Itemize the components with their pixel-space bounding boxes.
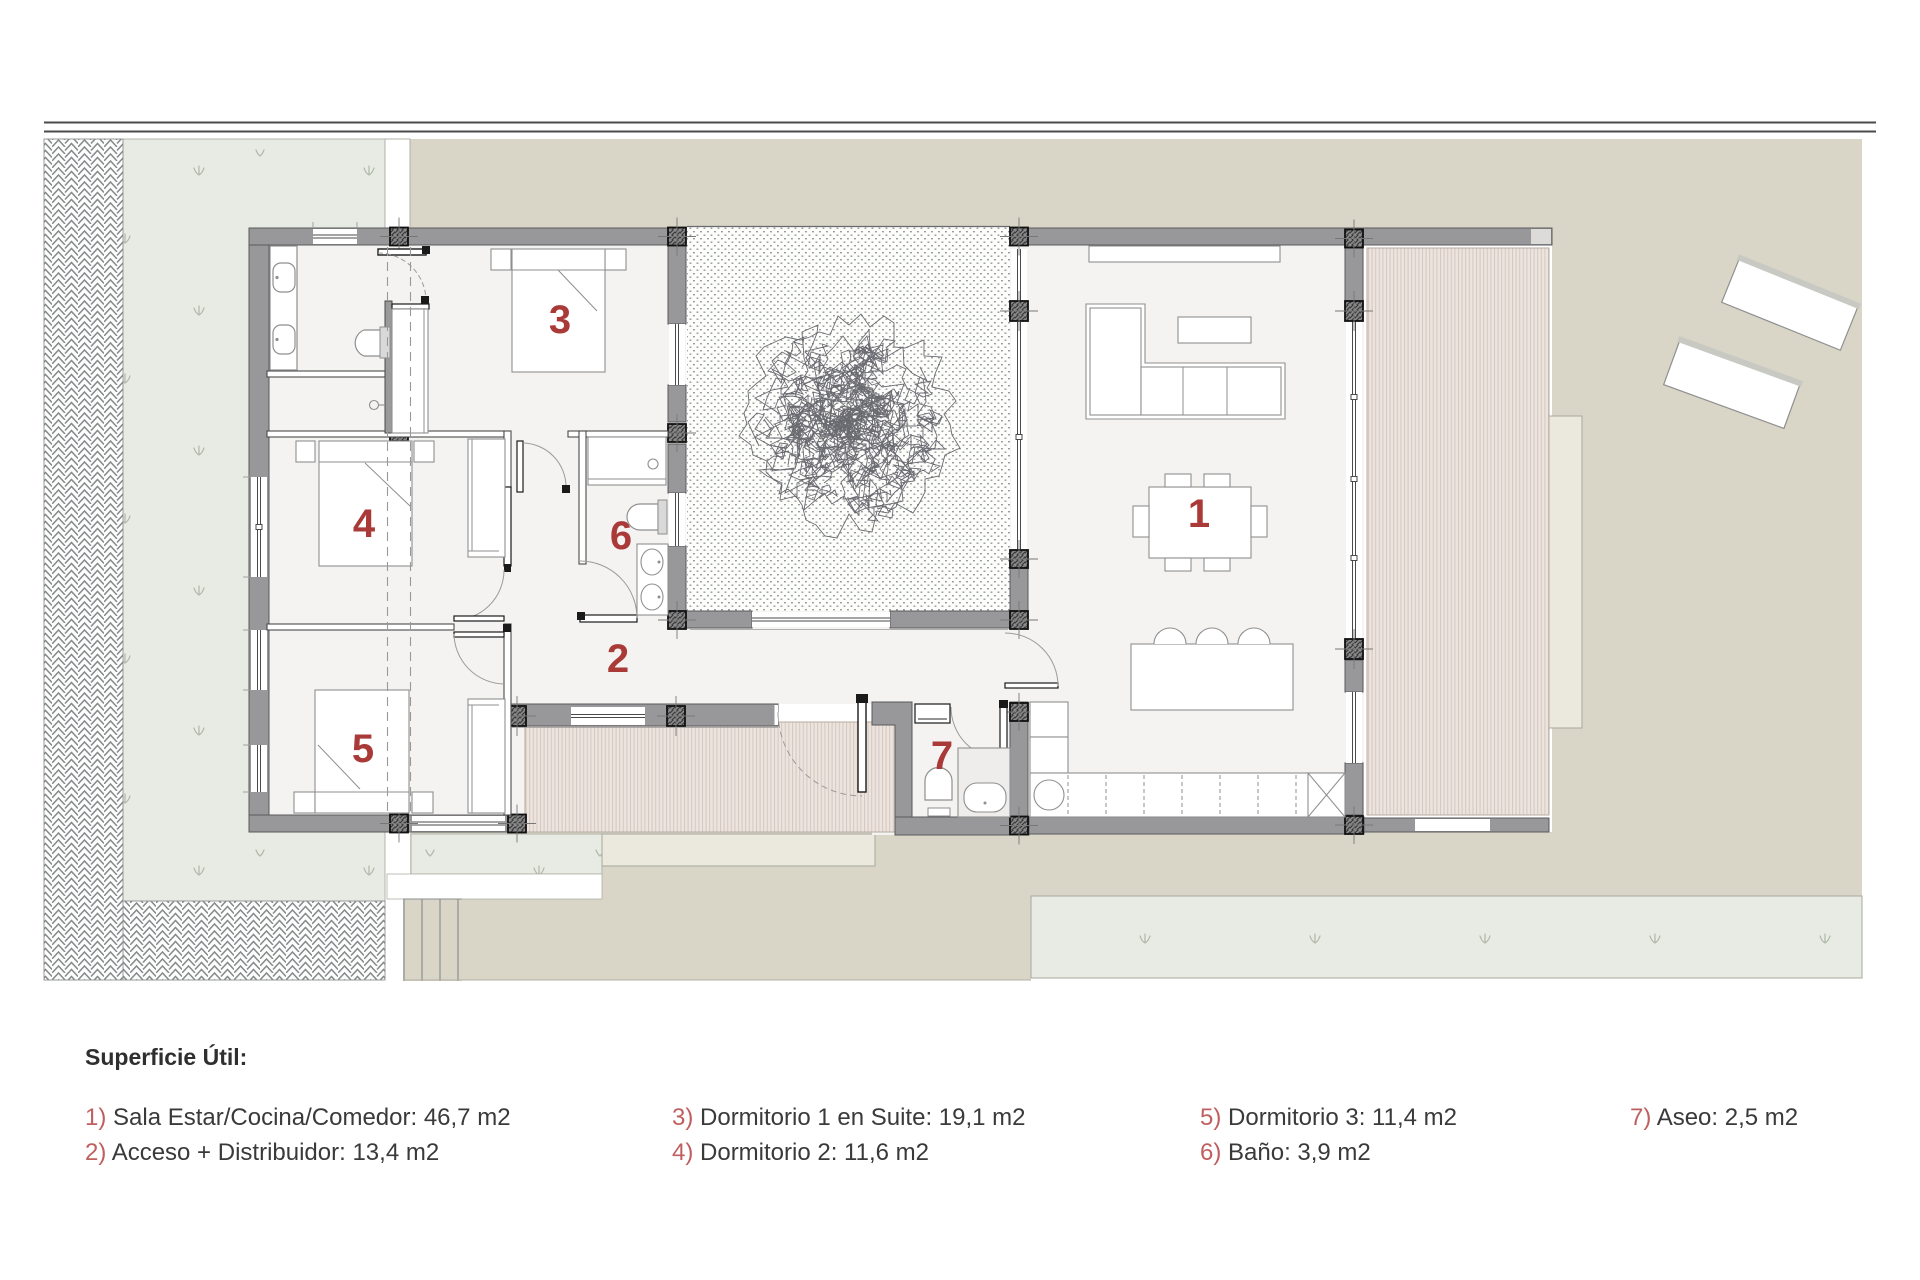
svg-text:1: 1 — [1188, 492, 1210, 536]
svg-text:6: 6 — [610, 514, 632, 558]
svg-text:5) Dormitorio 3: 11,4 m2: 5) Dormitorio 3: 11,4 m2 — [1200, 1104, 1457, 1131]
svg-text:1) Sala Estar/Cocina/Comedor:: 1) Sala Estar/Cocina/Comedor: 46,7 m2 — [85, 1104, 511, 1131]
svg-text:7) Aseo: 2,5 m2: 7) Aseo: 2,5 m2 — [1630, 1104, 1798, 1131]
svg-text:2) Acceso + Distribuidor: 13,4: 2) Acceso + Distribuidor: 13,4 m2 — [85, 1139, 439, 1166]
svg-text:4: 4 — [353, 502, 376, 546]
svg-text:3) Dormitorio 1 en Suite: 19,1: 3) Dormitorio 1 en Suite: 19,1 m2 — [672, 1104, 1026, 1131]
svg-text:2: 2 — [607, 637, 629, 681]
svg-text:Superficie Útil:: Superficie Útil: — [85, 1043, 247, 1070]
svg-text:5: 5 — [352, 727, 374, 771]
svg-text:3: 3 — [549, 298, 571, 342]
svg-text:4) Dormitorio 2: 11,6 m2: 4) Dormitorio 2: 11,6 m2 — [672, 1139, 929, 1166]
svg-text:7: 7 — [931, 734, 953, 778]
svg-text:6) Baño: 3,9 m2: 6) Baño: 3,9 m2 — [1200, 1139, 1371, 1166]
